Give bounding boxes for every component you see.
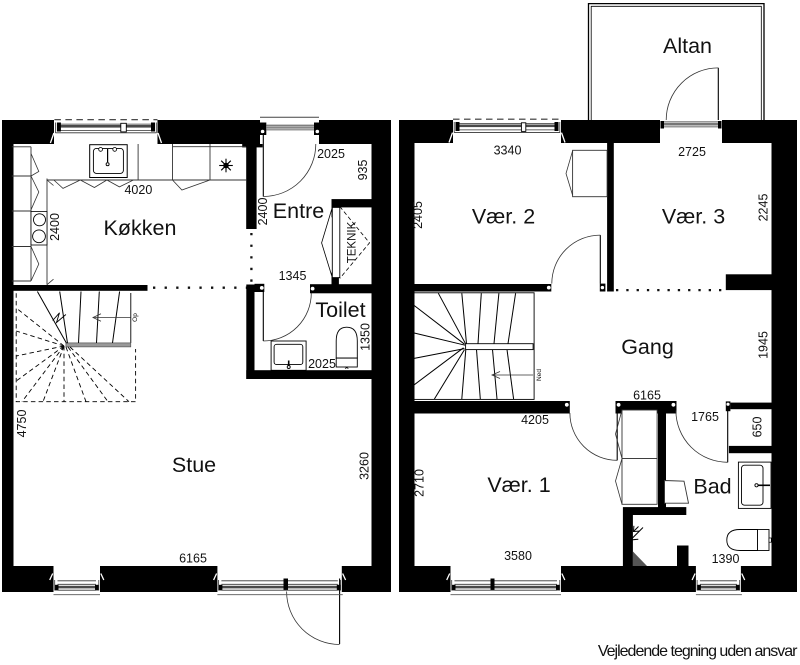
svg-text:650: 650 [751,417,765,438]
svg-text:Entre: Entre [273,199,324,223]
svg-text:TEKNIK: TEKNIK [347,221,359,263]
svg-text:2025: 2025 [317,147,345,161]
svg-text:4205: 4205 [521,413,549,427]
svg-text:2025: 2025 [308,357,336,371]
svg-text:1765: 1765 [691,410,719,424]
svg-text:935: 935 [356,160,370,181]
svg-text:3260: 3260 [358,452,372,480]
svg-text:Vær. 2: Vær. 2 [472,205,535,229]
svg-text:3580: 3580 [504,549,532,563]
svg-text:6165: 6165 [633,389,661,403]
svg-text:2405: 2405 [411,201,425,229]
svg-text:1945: 1945 [757,331,771,359]
svg-text:Vær. 3: Vær. 3 [662,205,725,229]
svg-text:Toilet: Toilet [315,298,365,322]
svg-text:Gang: Gang [621,335,674,359]
svg-text:2400: 2400 [48,213,62,241]
svg-text:1350: 1350 [359,323,373,351]
svg-text:Vær. 1: Vær. 1 [487,473,550,497]
svg-text:4750: 4750 [15,410,29,438]
svg-text:Bad: Bad [693,475,731,499]
svg-text:Vejledende tegning uden ansvar: Vejledende tegning uden ansvar [598,643,798,660]
svg-text:6165: 6165 [179,552,207,566]
svg-text:1390: 1390 [712,552,740,566]
svg-text:Ned: Ned [536,369,543,381]
svg-text:3340: 3340 [494,144,522,158]
svg-text:Op: Op [132,313,139,322]
svg-text:4020: 4020 [124,183,152,197]
svg-text:2725: 2725 [678,145,706,159]
svg-text:1345: 1345 [279,269,307,283]
svg-text:Køkken: Køkken [104,216,177,240]
svg-text:2400: 2400 [256,198,270,226]
svg-text:Stue: Stue [172,453,216,477]
svg-text:Altan: Altan [663,34,712,58]
svg-text:2710: 2710 [413,469,427,497]
svg-text:2245: 2245 [757,194,771,222]
